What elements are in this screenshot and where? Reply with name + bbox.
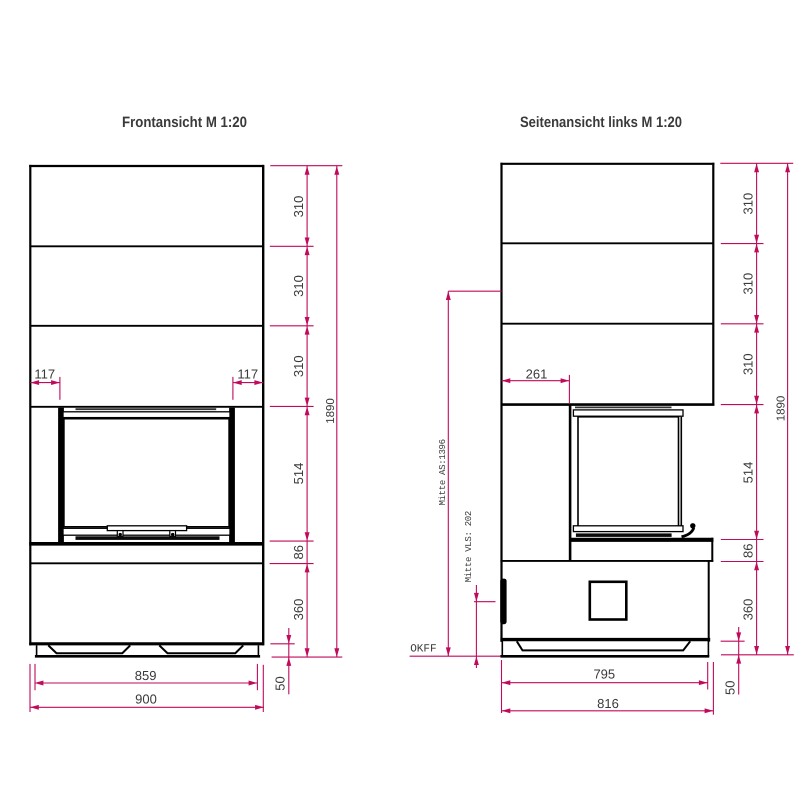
svg-text:514: 514 [291, 463, 306, 485]
svg-text:Mitte AS:1396: Mitte AS:1396 [438, 439, 448, 505]
svg-text:310: 310 [740, 273, 755, 295]
svg-text:117: 117 [237, 366, 258, 381]
svg-text:360: 360 [291, 599, 306, 621]
svg-text:Mitte VLS: 202: Mitte VLS: 202 [464, 511, 474, 582]
svg-text:1890: 1890 [776, 396, 788, 422]
svg-text:816: 816 [597, 696, 619, 711]
svg-text:310: 310 [291, 355, 306, 377]
svg-text:261: 261 [526, 366, 548, 381]
svg-text:310: 310 [291, 275, 306, 297]
svg-text:86: 86 [740, 544, 755, 558]
svg-text:859: 859 [135, 668, 157, 683]
svg-text:OKFF: OKFF [410, 643, 436, 655]
svg-text:900: 900 [135, 692, 157, 707]
svg-text:360: 360 [740, 599, 755, 621]
svg-text:86: 86 [291, 545, 306, 559]
svg-text:50: 50 [272, 676, 287, 690]
svg-text:1890: 1890 [325, 398, 337, 424]
svg-text:50: 50 [722, 681, 737, 695]
svg-text:310: 310 [740, 193, 755, 215]
svg-text:310: 310 [740, 353, 755, 375]
svg-text:Frontansicht M 1:20: Frontansicht M 1:20 [122, 114, 247, 131]
svg-text:514: 514 [740, 462, 755, 484]
svg-text:Seitenansicht links M 1:20: Seitenansicht links M 1:20 [520, 114, 682, 131]
svg-text:117: 117 [34, 366, 55, 381]
svg-text:310: 310 [291, 196, 306, 218]
svg-text:795: 795 [593, 666, 615, 681]
